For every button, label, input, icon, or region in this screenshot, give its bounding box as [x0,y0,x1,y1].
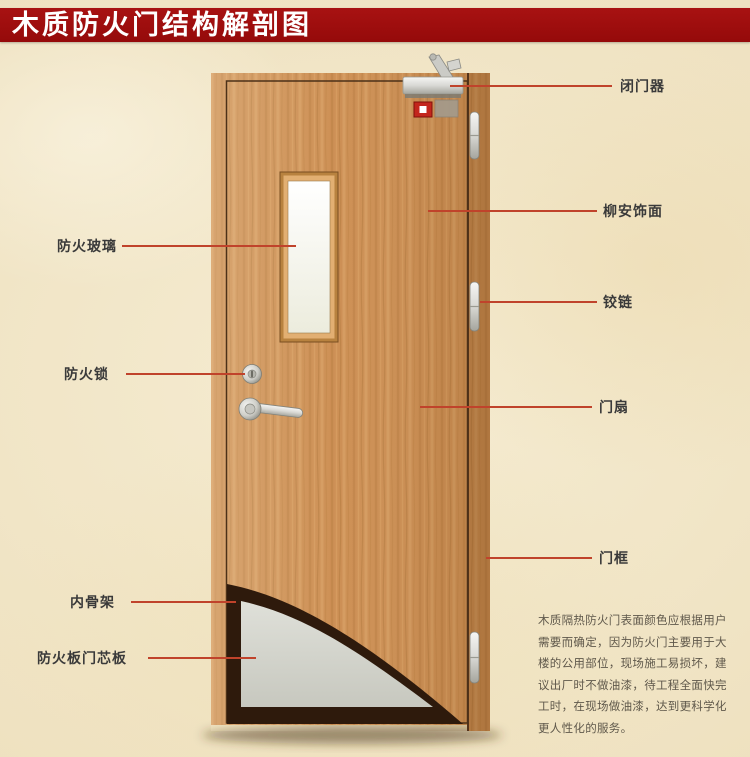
hinge-middle [470,282,479,331]
label-inner-frame: 内骨架 [70,593,115,611]
label-core-board: 防火板门芯板 [37,649,127,667]
description-line: 工时，在现场做油漆，达到更科学化 [538,697,733,719]
description-line: 更人性化的服务。 [538,719,733,741]
glass-window [280,172,338,342]
label-fire-glass: 防火玻璃 [57,237,117,255]
page-background: 木质防火门结构解剖图 [0,0,750,757]
description-line: 议出厂时不做油漆，待工程全面快完 [538,676,733,698]
wall-plate [435,100,458,117]
hinge-top [470,112,479,159]
label-door-frame: 门框 [599,549,629,567]
hinge-bottom [470,632,479,683]
label-hinge: 铰链 [603,293,633,311]
fire-lock-cylinder [243,365,262,384]
label-door-closer: 闭门器 [620,77,665,95]
label-fire-lock: 防火锁 [64,365,109,383]
description-line: 木质隔热防火门表面颜色应根据用户 [538,611,733,633]
label-door-leaf: 门扇 [599,398,629,416]
alarm-indicator [414,102,432,117]
description-line: 楼的公用部位，现场施工易损坏，建 [538,654,733,676]
description-line: 需要而确定，因为防火门主要用于大 [538,633,733,655]
label-veneer: 柳安饰面 [603,202,663,220]
description-text: 木质隔热防火门表面颜色应根据用户 需要而确定，因为防火门主要用于大 楼的公用部位… [538,611,733,740]
